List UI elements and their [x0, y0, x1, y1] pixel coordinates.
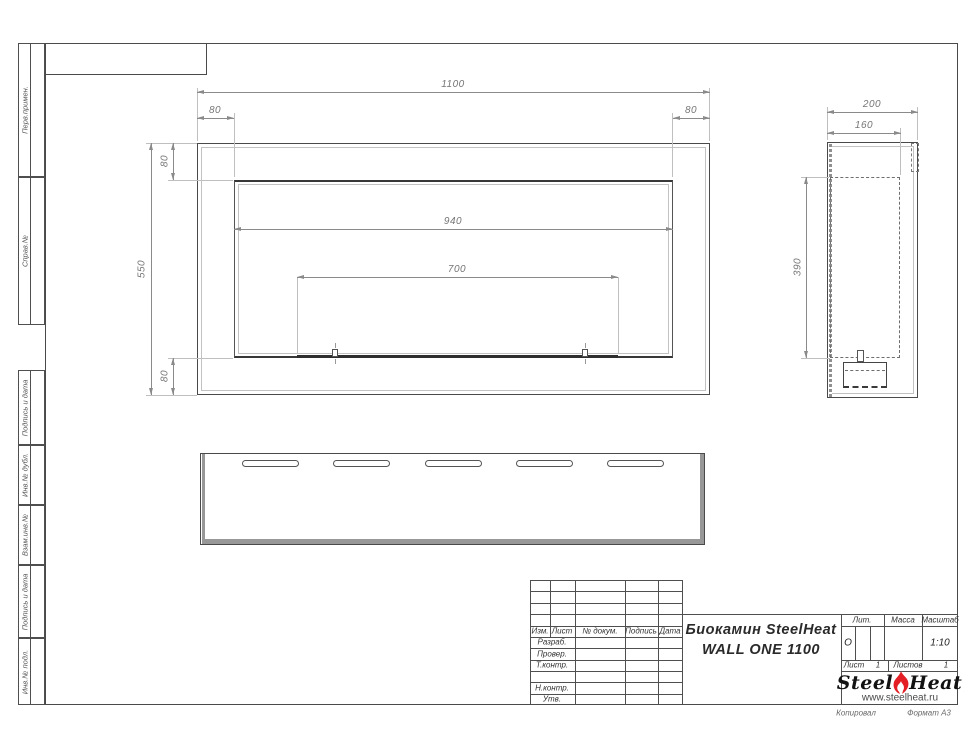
- extension-line: [297, 277, 298, 353]
- side-view-hidden-body: [830, 177, 900, 358]
- title-block-line: [625, 580, 626, 705]
- title-block-line: [884, 614, 885, 660]
- divider: [30, 566, 31, 637]
- scale-label: Масштаб: [921, 616, 958, 625]
- bottom-view-bottom-edge: [202, 539, 704, 544]
- title-block-line: [888, 660, 889, 672]
- scale-value: 1:10: [930, 637, 949, 648]
- row-nkontr: Н.контр.: [535, 684, 569, 693]
- format-label: Формат А3: [907, 709, 951, 718]
- dim-line-390: [806, 177, 807, 358]
- divider: [30, 506, 31, 564]
- dim-line-160: [827, 133, 901, 134]
- dim-flange-left: 80: [209, 105, 221, 116]
- logo-website: www.steelheat.ru: [862, 693, 938, 704]
- dim-total-height: 550: [137, 260, 148, 278]
- stamp-label: Перв.примен.: [21, 86, 30, 134]
- title-block-line: [530, 580, 682, 581]
- title-block-line: [658, 580, 659, 705]
- divider: [30, 446, 31, 504]
- dim-flange-right: 80: [685, 105, 697, 116]
- flame-icon: [891, 671, 911, 695]
- stamp-label: Инв.№ дубл.: [21, 453, 30, 497]
- dim-line-80-top-right: [673, 118, 710, 119]
- side-view-burner-box: [843, 362, 887, 388]
- title-block-line: [841, 626, 958, 627]
- extension-line: [900, 128, 901, 175]
- document-title-line2: WALL ONE 1100: [702, 642, 820, 658]
- sheet-value: 1: [876, 661, 880, 670]
- divider: [30, 178, 31, 324]
- dim-opening-width: 940: [444, 216, 462, 227]
- title-block-line: [855, 626, 856, 660]
- dim-line-940: [234, 229, 673, 230]
- title-block-line: [575, 580, 576, 705]
- stamp-label: Взам.инв.№: [21, 514, 30, 556]
- dim-total-width: 1100: [441, 79, 465, 90]
- centerline-tick: [585, 343, 586, 348]
- dim-depth: 200: [863, 99, 881, 110]
- col-date: Дата: [659, 627, 680, 636]
- extension-line: [234, 113, 235, 177]
- title-block-line: [530, 580, 531, 705]
- side-view-clip: [857, 350, 864, 362]
- dim-flange-bottom: 80: [160, 370, 171, 382]
- sheet-label: Лист: [844, 661, 865, 670]
- extension-line: [709, 88, 710, 141]
- vent-slot-1: [242, 460, 299, 467]
- side-view-burner-inner-line: [845, 370, 885, 371]
- row-prover: Провер.: [537, 649, 567, 658]
- divider: [30, 639, 31, 704]
- row-tkontr: Т.контр.: [536, 661, 568, 670]
- row-utv: Утв.: [543, 695, 561, 704]
- burner-edge-line: [297, 355, 618, 358]
- stamp-box-inv-podl: Инв.№ подл.: [18, 638, 45, 705]
- logo-heat-text: Heat: [909, 672, 962, 694]
- dim-line-80-top-left: [197, 118, 234, 119]
- col-sign: Подпись: [625, 627, 657, 636]
- extension-line: [168, 358, 233, 359]
- vent-slot-4: [516, 460, 573, 467]
- sheets-value: 1: [944, 661, 948, 670]
- title-block-line: [870, 626, 871, 660]
- title-block-line: [530, 603, 682, 604]
- dim-line-1100: [197, 92, 710, 93]
- document-title-line1: Биокамин SteelHeat: [685, 622, 836, 638]
- copied-by-label: Копировал: [836, 709, 876, 718]
- logo-steel-text: Steel: [837, 672, 893, 694]
- stamp-box-sprav-no: Справ.№: [18, 177, 45, 325]
- dim-line-700: [297, 277, 618, 278]
- stamp-box-inv-dubl: Инв.№ дубл.: [18, 445, 45, 505]
- col-list: Лист: [552, 627, 573, 636]
- title-block-line: [682, 580, 683, 705]
- dim-flange-top: 80: [160, 155, 171, 167]
- title-block-line: [530, 591, 682, 592]
- bottom-view-right-edge: [700, 454, 704, 544]
- vent-slot-2: [333, 460, 390, 467]
- steelheat-logo: Steel Heat: [841, 672, 958, 694]
- extension-line: [672, 113, 673, 177]
- lit-value: О: [844, 637, 852, 648]
- dim-line-200: [827, 112, 918, 113]
- dim-line-550: [151, 143, 152, 395]
- burner-clip-left: [332, 349, 338, 357]
- dim-line-80-left-top: [173, 143, 174, 180]
- drawing-sheet: Перв.примен. Справ.№ Подпись и дата Инв.…: [0, 0, 970, 750]
- burner-clip-right: [582, 349, 588, 357]
- dim-inner-height: 390: [793, 258, 804, 276]
- stamp-label: Подпись и дата: [21, 573, 30, 630]
- dim-burner-width: 700: [448, 264, 466, 275]
- lit-label: Лит.: [853, 616, 872, 625]
- vent-slot-3: [425, 460, 482, 467]
- stamp-label: Справ.№: [21, 235, 30, 267]
- stamp-box-podpis-data-2: Подпись и дата: [18, 565, 45, 638]
- extension-line: [618, 277, 619, 353]
- centerline-tick: [335, 359, 336, 364]
- vent-slot-5: [607, 460, 664, 467]
- stamp-box-vzam-inv: Взам.инв.№: [18, 505, 45, 565]
- dim-line-80-left-bottom: [173, 358, 174, 395]
- stamp-box-podpis-data-1: Подпись и дата: [18, 370, 45, 445]
- col-doc: № докум.: [582, 627, 617, 636]
- mass-label: Масса: [891, 616, 915, 625]
- divider: [30, 44, 31, 176]
- extension-line: [197, 88, 198, 141]
- extension-line: [168, 180, 233, 181]
- top-left-stamp-box: [45, 43, 207, 75]
- title-block-line: [530, 671, 682, 672]
- side-view-bracket: [911, 143, 919, 172]
- stamp-label: Инв.№ подл.: [21, 649, 30, 693]
- bottom-view-left-edge: [202, 454, 206, 544]
- row-razrab: Разраб.: [538, 638, 567, 647]
- stamp-label: Подпись и дата: [21, 379, 30, 436]
- sheets-label: Листов: [893, 661, 922, 670]
- centerline-tick: [335, 343, 336, 348]
- divider: [30, 371, 31, 444]
- centerline-tick: [585, 359, 586, 364]
- col-izm: Изм.: [531, 627, 548, 636]
- dim-inner-depth: 160: [855, 120, 873, 131]
- stamp-box-perv-primen: Перв.примен.: [18, 43, 45, 177]
